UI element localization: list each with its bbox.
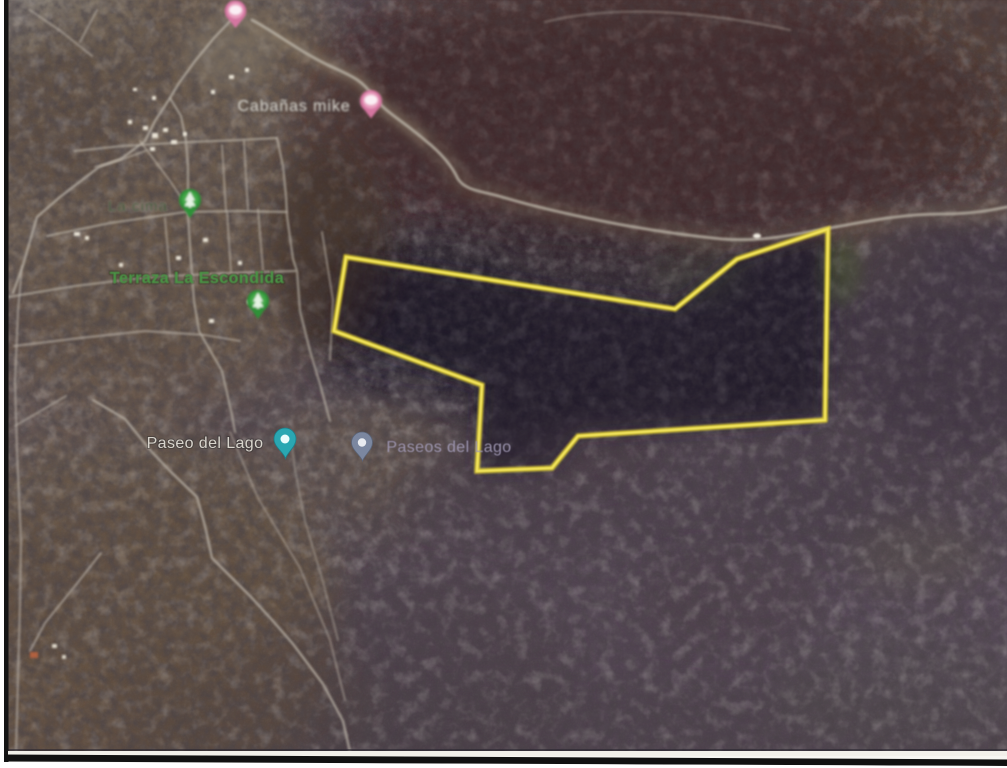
svg-text:Paseo del Lago: Paseo del Lago: [147, 435, 264, 452]
svg-text:Terraza La Escondida: Terraza La Escondida: [110, 270, 284, 287]
svg-text:Paseos del Lago: Paseos del Lago: [386, 439, 511, 456]
svg-text:La cima: La cima: [108, 198, 168, 215]
svg-text:Cabañas mike: Cabañas mike: [237, 98, 350, 115]
